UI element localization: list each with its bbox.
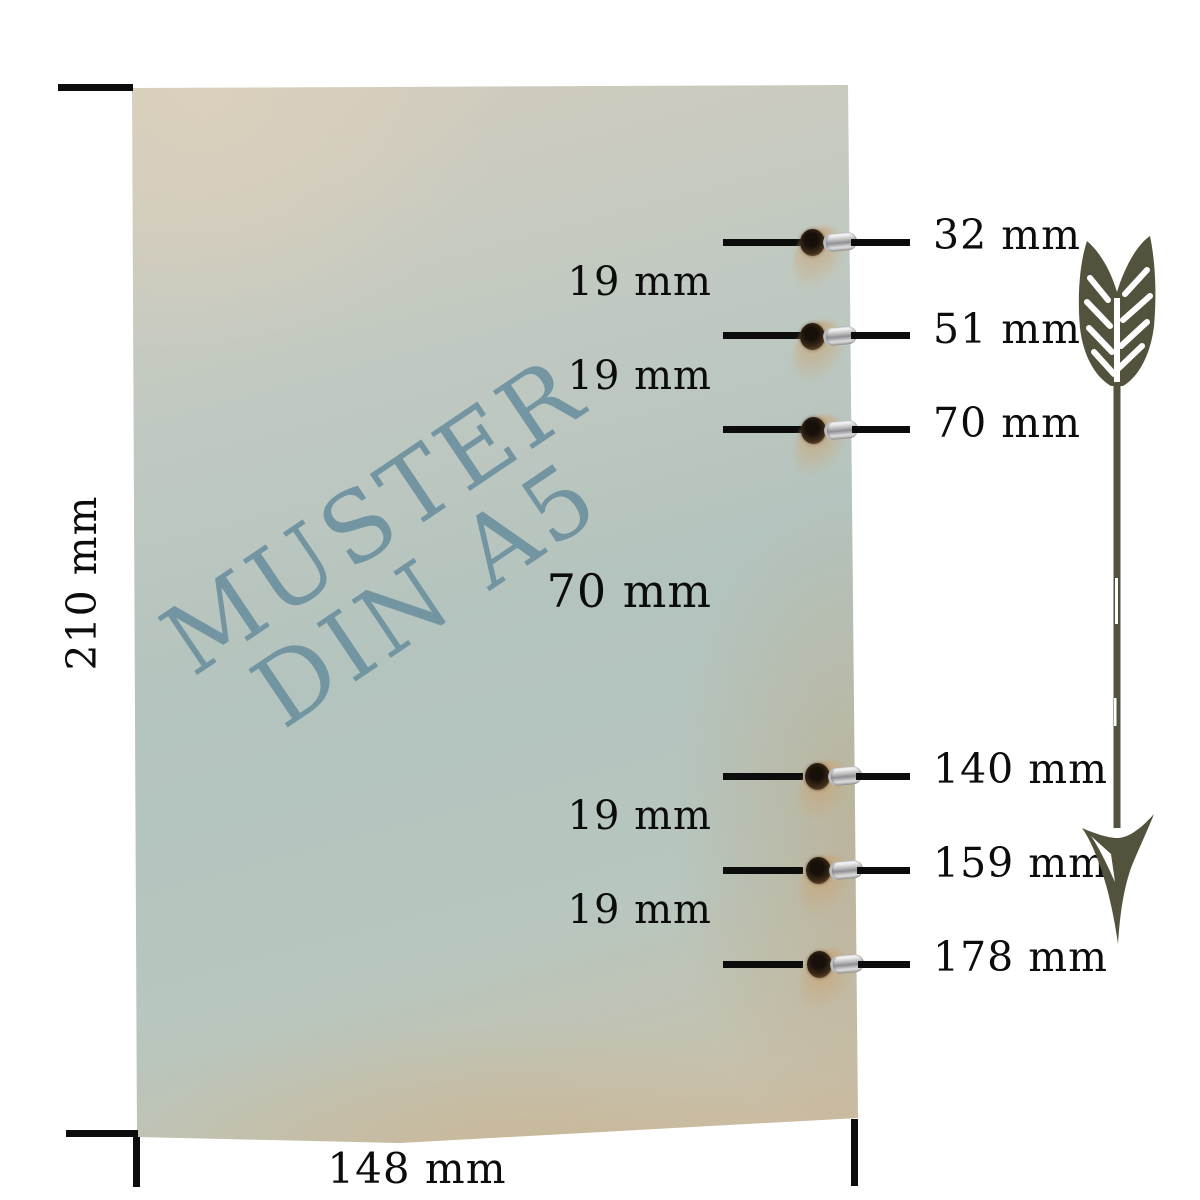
paper-sample: MUSTER DIN A5	[130, 85, 858, 1143]
watermark-text: MUSTER DIN A5	[73, 237, 728, 873]
measure-line-right	[851, 332, 910, 339]
gap-distance-label: 19 mm	[520, 258, 712, 306]
height-dimension-label: 210 mm	[60, 498, 104, 668]
gap-distance-label: 19 mm	[520, 886, 712, 934]
width-dimension-label: 148 mm	[317, 1146, 517, 1190]
tick-bottom-left-horizontal	[66, 1130, 138, 1137]
gap-distance-label: 70 mm	[520, 567, 712, 615]
measure-line-right	[858, 961, 910, 968]
diagram-canvas: MUSTER DIN A5 210 mm 148 mm 32 mm 51 mm	[0, 0, 1200, 1200]
tick-bottom-right-vertical	[851, 1119, 858, 1186]
tick-bottom-left-vertical	[133, 1137, 140, 1187]
measure-line-right	[852, 426, 910, 433]
measure-line-right	[856, 773, 910, 780]
gap-distance-label: 19 mm	[520, 792, 712, 840]
measure-line-right	[857, 867, 910, 874]
decorative-arrow-icon	[1068, 228, 1168, 958]
tick-top-left	[58, 84, 133, 91]
gap-distance-label: 19 mm	[520, 352, 712, 400]
measure-line-right	[851, 239, 910, 246]
